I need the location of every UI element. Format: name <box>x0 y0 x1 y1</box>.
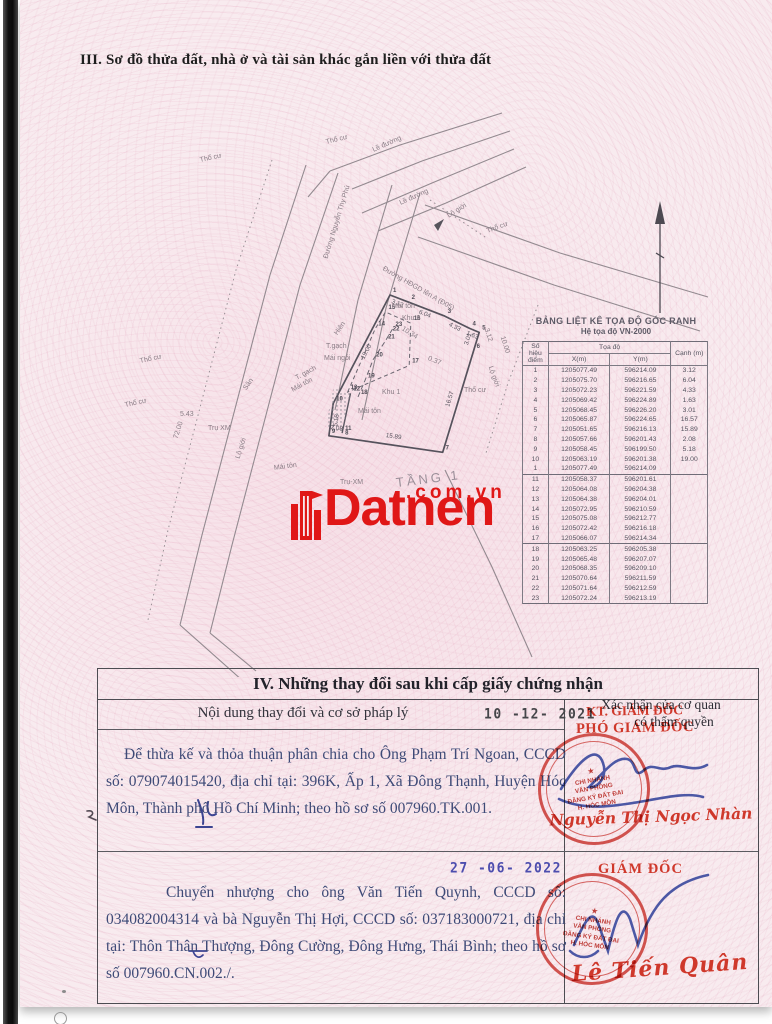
road-line <box>210 633 256 671</box>
vertex-number: 2 <box>412 295 416 301</box>
table-row: 221205071.64596212.59 <box>523 584 708 594</box>
coordinate-table: BẢNG LIỆT KÊ TỌA ĐỘ GÓC RANH Hệ tọa độ V… <box>522 316 710 604</box>
north-arrow-icon <box>655 201 665 313</box>
entry1-text: Để thừa kế và thỏa thuận phân chia cho Ô… <box>106 741 566 822</box>
vertex-number: 14 <box>378 322 385 328</box>
col-header-y: Y(m) <box>610 354 671 366</box>
scan-spine-shadow <box>3 0 18 1024</box>
vertex-number: 21 <box>388 334 395 340</box>
scanned-certificate-page: III. Sơ đồ thửa đất, nhà ở và tài sản kh… <box>0 0 772 1024</box>
map-label: Khu 2 <box>402 315 420 322</box>
table-row: 71205051.65596216.1315.89 <box>523 425 708 435</box>
entry2-text: Chuyển nhượng cho ông Văn Tiến Quynh, CC… <box>106 879 566 987</box>
datnen-watermark: .com.vn Datnen <box>278 452 518 552</box>
table-row: 141205072.95596210.59 <box>523 504 708 514</box>
road-line <box>210 173 338 633</box>
left-column-header: Nội dung thay đổi và cơ sở pháp lý <box>138 705 468 722</box>
vertex-number: 17 <box>412 359 419 365</box>
map-label: Trụ XM <box>208 425 231 432</box>
coordinate-table-title: BẢNG LIỆT KÊ TỌA ĐỘ GÓC RANH <box>522 316 710 326</box>
table-row: 81205057.66596201.432.08 <box>523 435 708 445</box>
table-row: 11205077.49596214.093.12 <box>523 366 708 376</box>
edge-dimension: 15.89 <box>385 432 402 441</box>
vertex-number: 4 <box>473 321 477 327</box>
parcel-geometry: 12345678910111213141516171819202122233.1… <box>325 288 486 452</box>
vertex-number: 18 <box>361 390 368 396</box>
scan-artifact <box>54 1012 67 1024</box>
table-row: 11205077.49596214.09 <box>523 464 708 474</box>
section4-title: IV. Những thay đổi sau khi cấp giấy chứn… <box>98 669 758 700</box>
table-row: 111205058.37596201.61 <box>523 474 708 484</box>
vertex-number: 6 <box>477 344 481 350</box>
road-edge-dotted <box>148 160 272 620</box>
table-row: 231205072.24596213.19 <box>523 593 708 603</box>
col-header-coords: Tọa độ <box>548 342 671 354</box>
scan-artifact <box>62 990 66 993</box>
road-direction-arrow <box>434 219 444 231</box>
datnen-logo-icon <box>290 488 324 540</box>
col-header-x: X(m) <box>548 354 610 366</box>
table-row: 51205068.45596226.203.01 <box>523 405 708 415</box>
table-row: 121205064.08596204.38 <box>523 485 708 495</box>
stamp-title-kt-giam-doc: KT. GIÁM ĐỐC <box>586 702 683 720</box>
road-line <box>308 171 330 197</box>
road-line <box>362 149 514 213</box>
left-header-underline <box>98 729 564 730</box>
section4-box: IV. Những thay đổi sau khi cấp giấy chứn… <box>97 668 759 1004</box>
table-row: 101205063.19596201.3819.00 <box>523 454 708 464</box>
map-label: Khu 1 <box>382 389 400 396</box>
table-row: 211205070.64596211.59 <box>523 574 708 584</box>
table-row: 31205072.23596221.594.33 <box>523 386 708 396</box>
edge-dimension: 19.00 <box>360 343 374 361</box>
road-line <box>425 205 708 297</box>
coordinate-table-grid: Số hiệu điểm Tọa độ Cạnh (m) X(m) Y(m) 1… <box>522 341 708 604</box>
coordinate-table-subtitle: Hệ tọa độ VN-2000 <box>522 327 710 336</box>
vertex-number: 1 <box>393 288 397 294</box>
table-row: 191205065.48596207.07 <box>523 554 708 564</box>
col-header-point: Số hiệu điểm <box>523 342 549 366</box>
certificate-page: III. Sơ đồ thửa đất, nhà ở và tài sản kh… <box>20 0 772 1007</box>
map-label: 5.43 <box>180 411 194 418</box>
entry-divider <box>98 851 758 852</box>
vertex-number: 10 <box>336 396 343 402</box>
col-header-edge: Cạnh (m) <box>671 342 708 366</box>
edge-dimension: 3.01 <box>463 332 473 346</box>
map-label: Mái ngói <box>324 355 350 362</box>
table-row: 131205064.38596204.01 <box>523 494 708 504</box>
table-row: 91205058.45596199.505.18 <box>523 444 708 454</box>
section3-title: III. Sơ đồ thửa đất, nhà ở và tài sản kh… <box>80 52 491 69</box>
map-label: Mái tôn <box>392 303 415 310</box>
map-label: Mái tôn <box>358 408 381 415</box>
road-line <box>335 185 392 410</box>
map-label: Thổ cư <box>464 387 486 394</box>
table-row: 151205075.08596212.77 <box>523 514 708 524</box>
vertex-number: 20 <box>376 352 383 358</box>
edge-dimension: 16.57 <box>444 390 455 408</box>
road-line <box>180 165 306 625</box>
table-row: 181205063.25596205.38 <box>523 544 708 554</box>
table-row: 61205065.87596224.6516.57 <box>523 415 708 425</box>
table-row: 41205069.42596224.891.63 <box>523 395 708 405</box>
vertex-number: 7 <box>446 445 450 451</box>
table-row: 21205075.70596216.656.04 <box>523 376 708 386</box>
table-row: 161205072.42596216.18 <box>523 524 708 534</box>
map-label: T.gạch <box>326 343 347 350</box>
vertex-number: 11 <box>345 426 352 432</box>
watermark-brand: Datnen <box>324 482 494 534</box>
vertex-number: 19 <box>368 373 375 379</box>
table-row: 171205066.07596214.34 <box>523 534 708 544</box>
vertex-number: 13 <box>351 385 358 391</box>
table-row: 201205068.35596209.10 <box>523 564 708 574</box>
